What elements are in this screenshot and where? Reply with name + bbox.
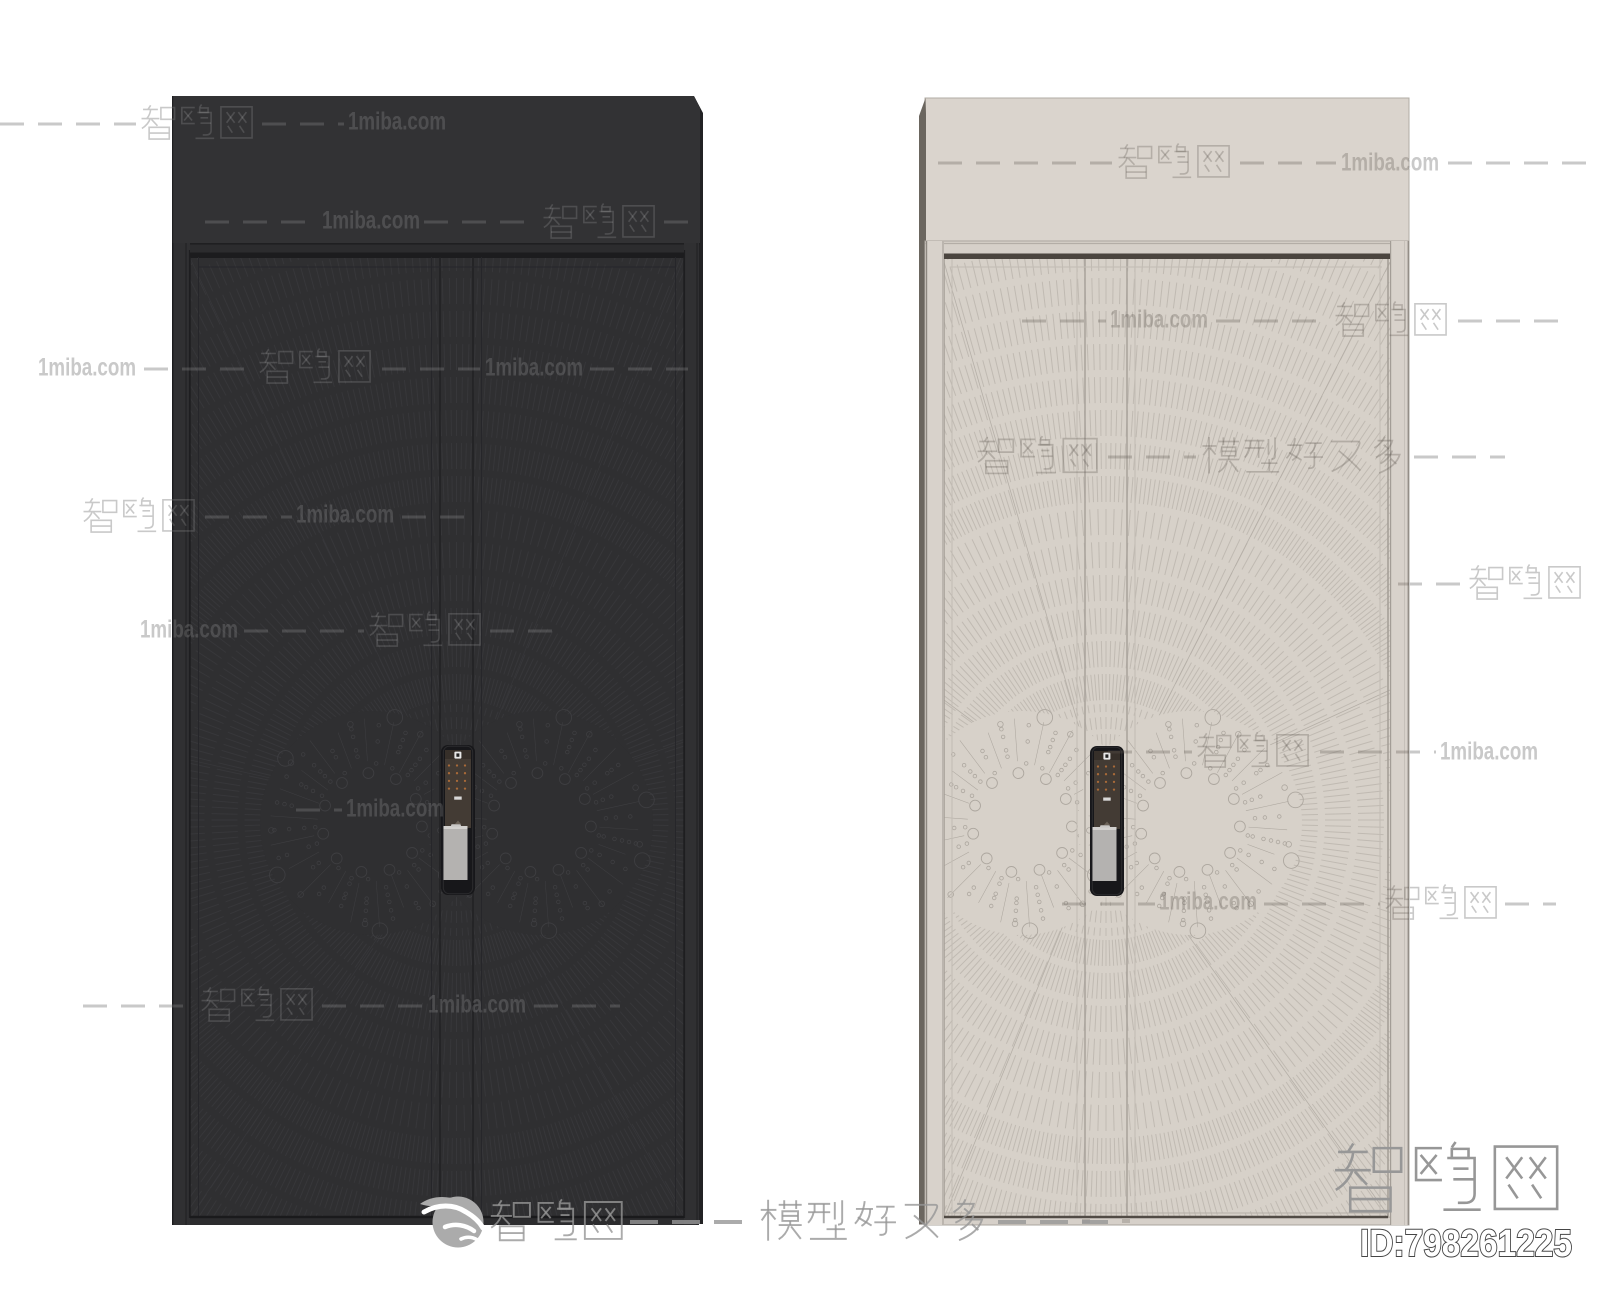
svg-text:ID:798261225: ID:798261225 — [1360, 1223, 1572, 1265]
